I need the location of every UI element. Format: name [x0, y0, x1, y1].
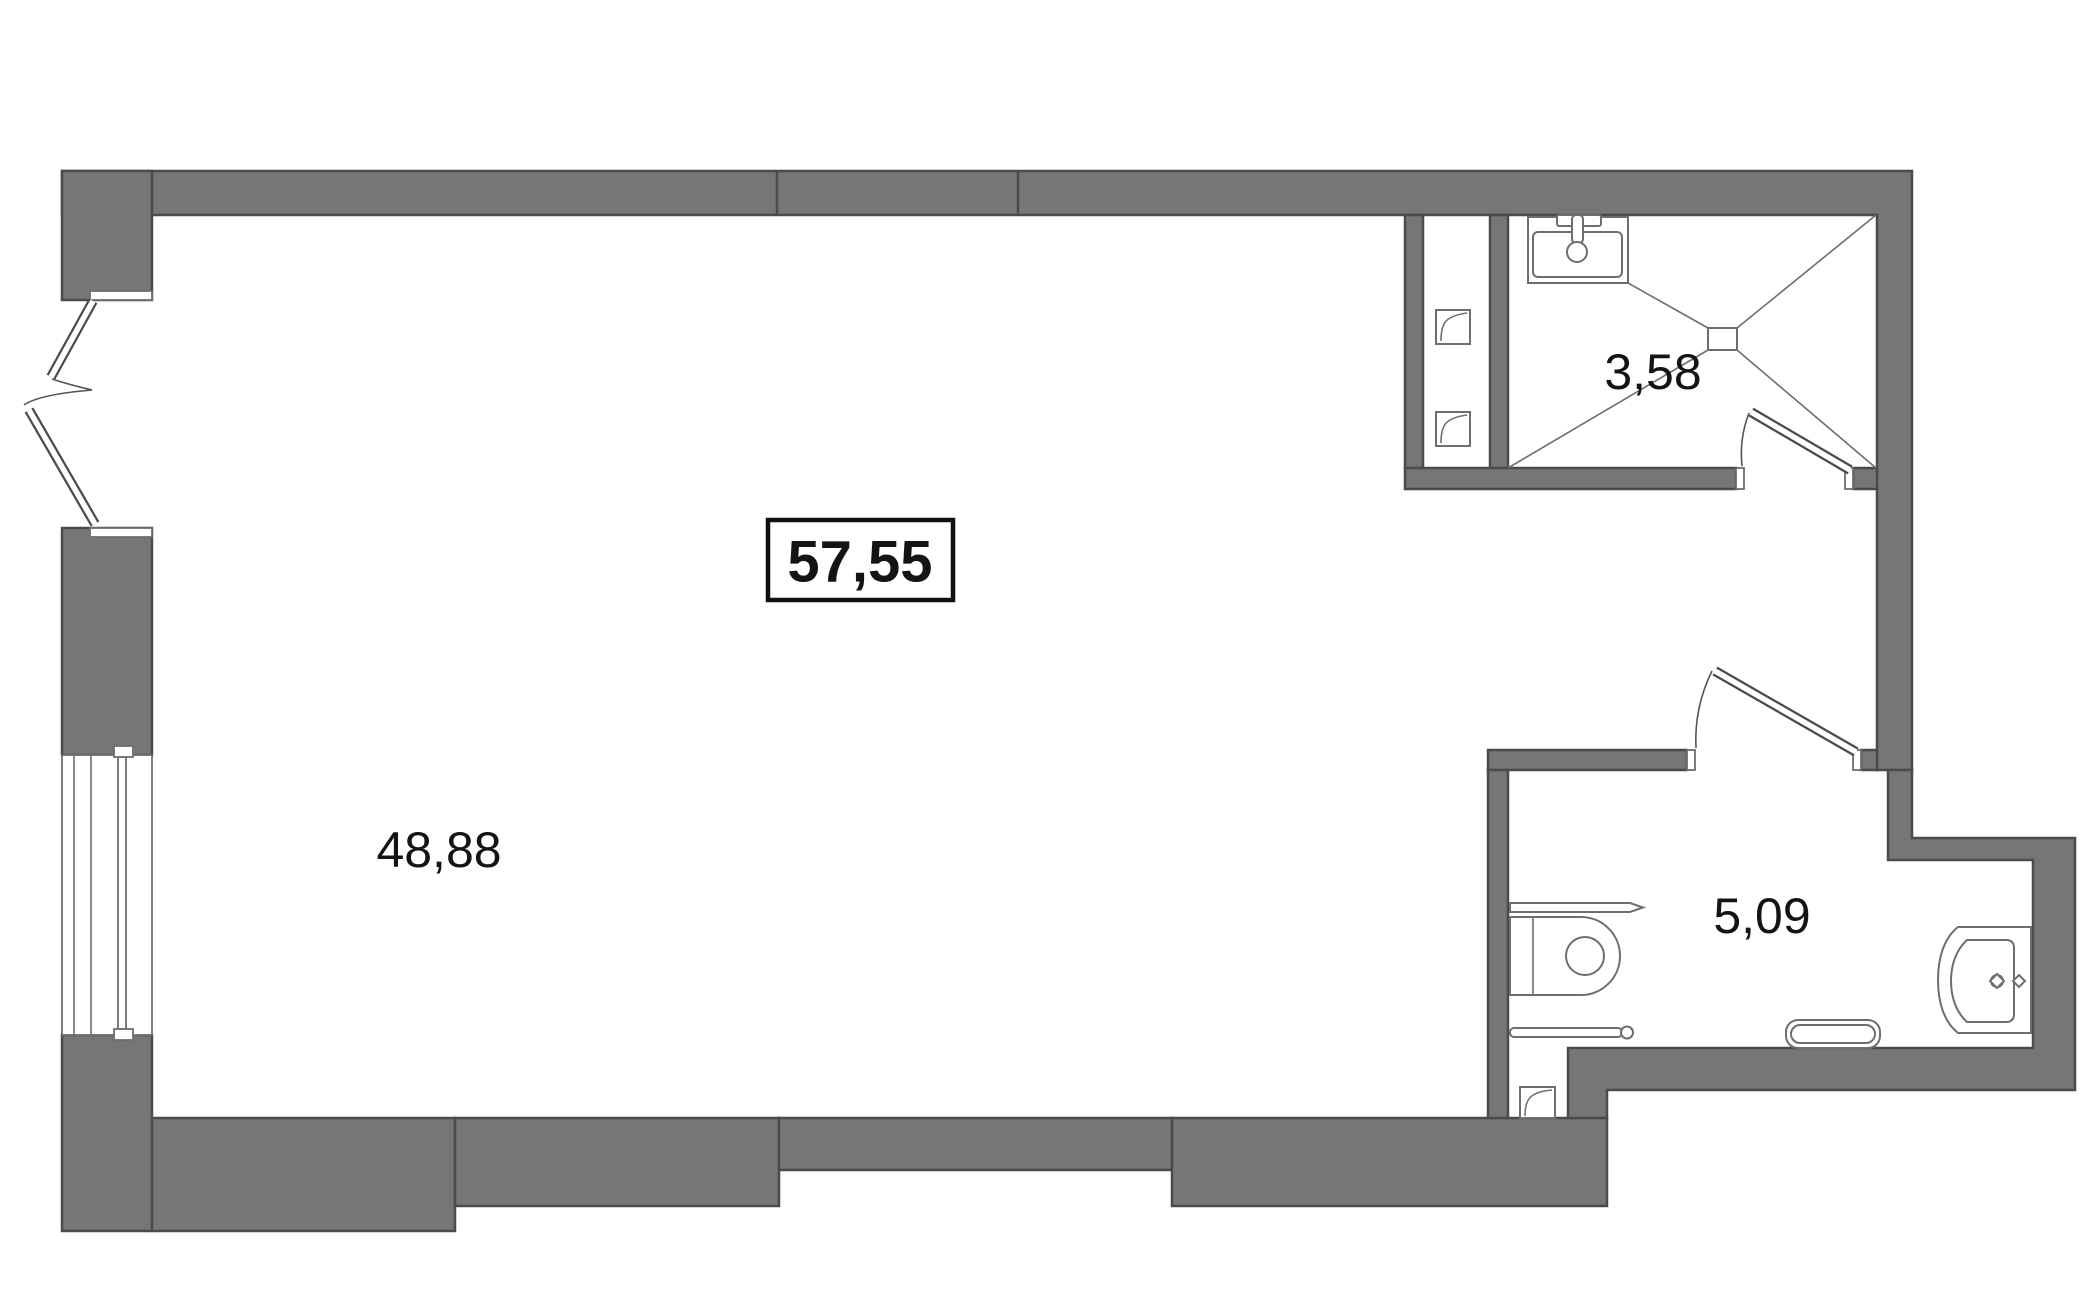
bathroom-area-value: 5,09 [1713, 888, 1810, 944]
window-glazing-cap [114, 746, 133, 757]
wall-bathroom-top-stub [1861, 750, 1877, 770]
wall-bottom-segment [779, 1118, 1172, 1170]
wall-shower-bottom-stub [1853, 468, 1877, 489]
wall-bottom-segment [1172, 1118, 1607, 1206]
wall-bathroom-left [1488, 770, 1508, 1118]
bathtub-icon [1938, 927, 2031, 1033]
total-area-label: 57,55 [768, 520, 953, 600]
total-area-value: 57,55 [787, 530, 932, 595]
jamb-cap [1687, 750, 1695, 770]
toilet-icon [1510, 917, 1620, 995]
vent-duct-icon [1436, 310, 1470, 344]
vent-duct-icon [1436, 412, 1470, 446]
wall-bottom-segment [152, 1118, 455, 1231]
wall-shower-bottom [1405, 468, 1736, 489]
living-area-value: 48,88 [376, 822, 501, 878]
wall-duct-left [1405, 215, 1423, 468]
sink-icon [1528, 215, 1628, 283]
wall-bathroom-top [1488, 750, 1687, 770]
window-sill-cap [90, 528, 152, 537]
wall-left-lower [62, 1035, 152, 1231]
towel-rail-bottom-icon [1510, 1027, 1633, 1039]
shower-area-value: 3,58 [1604, 344, 1701, 400]
radiator-icon [1786, 1020, 1880, 1048]
wall-bottom-segment [455, 1118, 779, 1206]
shower-drain-icon [1708, 328, 1737, 350]
wall-left-upper [62, 171, 152, 300]
window-glazing-cap [114, 1029, 133, 1040]
floor-plan: 57,55 48,88 3,58 5,09 [0, 0, 2100, 1298]
floor-plan-page: 57,55 48,88 3,58 5,09 [0, 0, 2100, 1298]
towel-rail-top-icon [1510, 903, 1643, 912]
jamb-cap [1736, 468, 1744, 489]
window-glazing-bar [118, 757, 126, 1029]
wall-duct-right [1490, 215, 1508, 468]
wall-left-middle [62, 528, 152, 755]
window-opening [62, 755, 152, 1035]
window-left [62, 746, 152, 1040]
window-sill-cap [90, 291, 152, 300]
vent-duct-icon [1520, 1087, 1555, 1118]
